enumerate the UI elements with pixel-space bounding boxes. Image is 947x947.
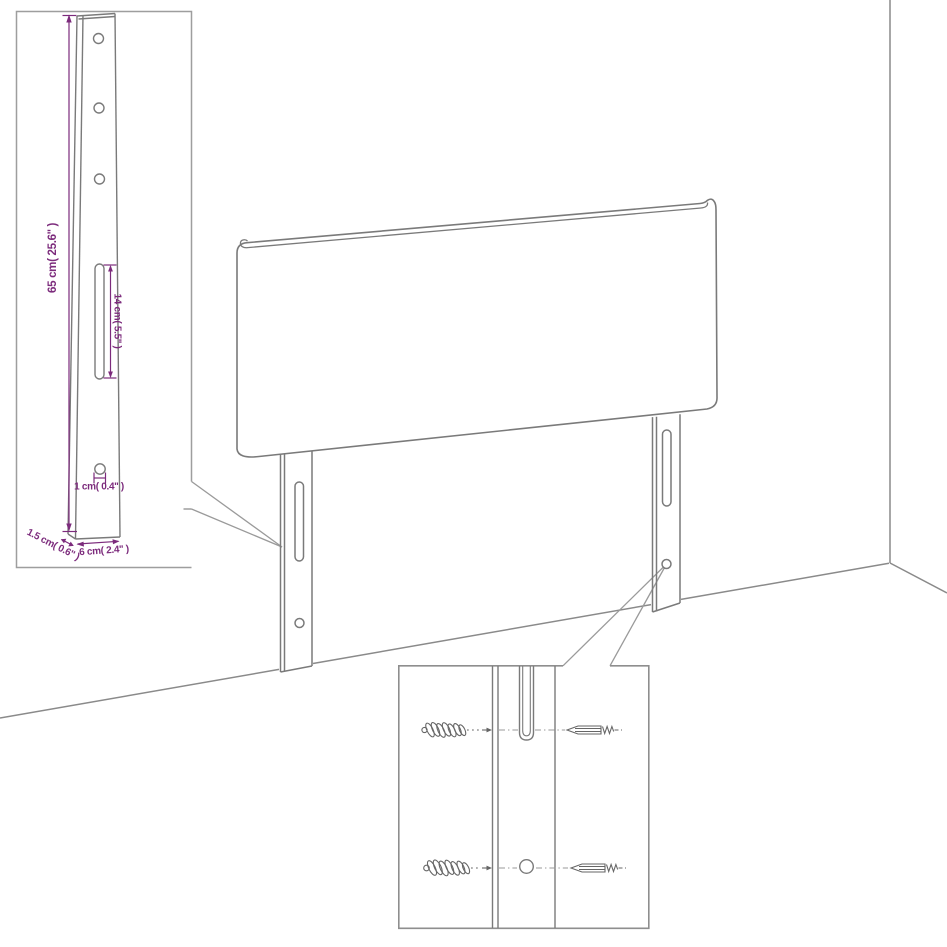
dim-arrow xyxy=(66,524,71,532)
screw-icon xyxy=(424,859,492,877)
floor-line-right xyxy=(890,563,947,593)
dim-label-hole-diameter: 1 cm( 0.4'' ) xyxy=(74,482,124,493)
floor-line-left-segment-2 xyxy=(313,605,651,664)
bracket-edge xyxy=(76,15,84,539)
leg-front-view xyxy=(493,666,556,928)
leg-slot xyxy=(295,482,304,561)
bracket-hole-top xyxy=(94,34,104,44)
bracket-hole-middle xyxy=(94,103,104,113)
leg-slot xyxy=(663,430,672,506)
dim-label-height: 65 cm( 25.6'' ) xyxy=(47,223,59,293)
leg-bracket-drawing xyxy=(68,14,120,540)
mounting-inset-leader-lines xyxy=(563,564,667,666)
bracket-top-edge xyxy=(77,14,115,17)
floor-line-left-segment-1 xyxy=(0,669,279,718)
bracket-hole-lower xyxy=(95,174,105,184)
dim-arrow xyxy=(77,542,85,547)
bracket-slot xyxy=(95,264,104,379)
screw-axis-arrow xyxy=(487,728,493,733)
dim-arrow xyxy=(108,372,113,379)
plug-flange-squiggle xyxy=(603,727,614,734)
plug-flange-squiggle xyxy=(607,865,618,872)
line-art xyxy=(0,0,947,947)
bracket-edge xyxy=(115,14,120,538)
leader-line xyxy=(610,564,667,666)
leg-slot-inner-outline xyxy=(523,666,531,736)
headboard-outline xyxy=(237,199,717,457)
headboard-panel xyxy=(237,199,717,457)
bracket-top-inner-edge xyxy=(79,17,116,20)
plug-body xyxy=(571,864,605,872)
plug-body xyxy=(567,726,601,734)
leg-inset-leader-lines xyxy=(192,482,283,548)
dim-label-slot-length: 14 cm( 5.5'' ) xyxy=(112,293,123,348)
inset-box-border xyxy=(399,666,649,929)
bracket-bottom-hole xyxy=(95,464,105,474)
wall-plug-icon xyxy=(567,726,622,734)
floor-line-left-segment-3 xyxy=(681,563,889,599)
screw-thread xyxy=(461,862,471,875)
dim-arrow xyxy=(108,265,113,272)
diagram-canvas: 65 cm( 25.6'' ) 14 cm( 5.5'' ) 1 cm( 0.4… xyxy=(0,0,947,947)
headboard-left-leg xyxy=(281,451,313,672)
screw-thread xyxy=(424,722,436,738)
leg-screw-hole xyxy=(662,560,671,569)
screw-axis-arrow xyxy=(487,866,493,871)
screw-thread xyxy=(426,859,439,876)
leg-hole xyxy=(520,860,534,874)
screw-thread xyxy=(457,724,467,737)
leader-line xyxy=(563,564,667,666)
leg-slot-outline xyxy=(520,666,534,740)
headboard-right-leg xyxy=(653,414,681,612)
screw-icon xyxy=(422,721,492,738)
center-lines xyxy=(499,730,568,868)
mounting-detail-inset xyxy=(399,666,649,929)
bracket-bottom-side-edge xyxy=(68,534,76,539)
wall-plug-icon xyxy=(571,864,626,872)
leg-screw-hole xyxy=(295,619,304,628)
bracket-bottom-edge xyxy=(76,537,121,539)
